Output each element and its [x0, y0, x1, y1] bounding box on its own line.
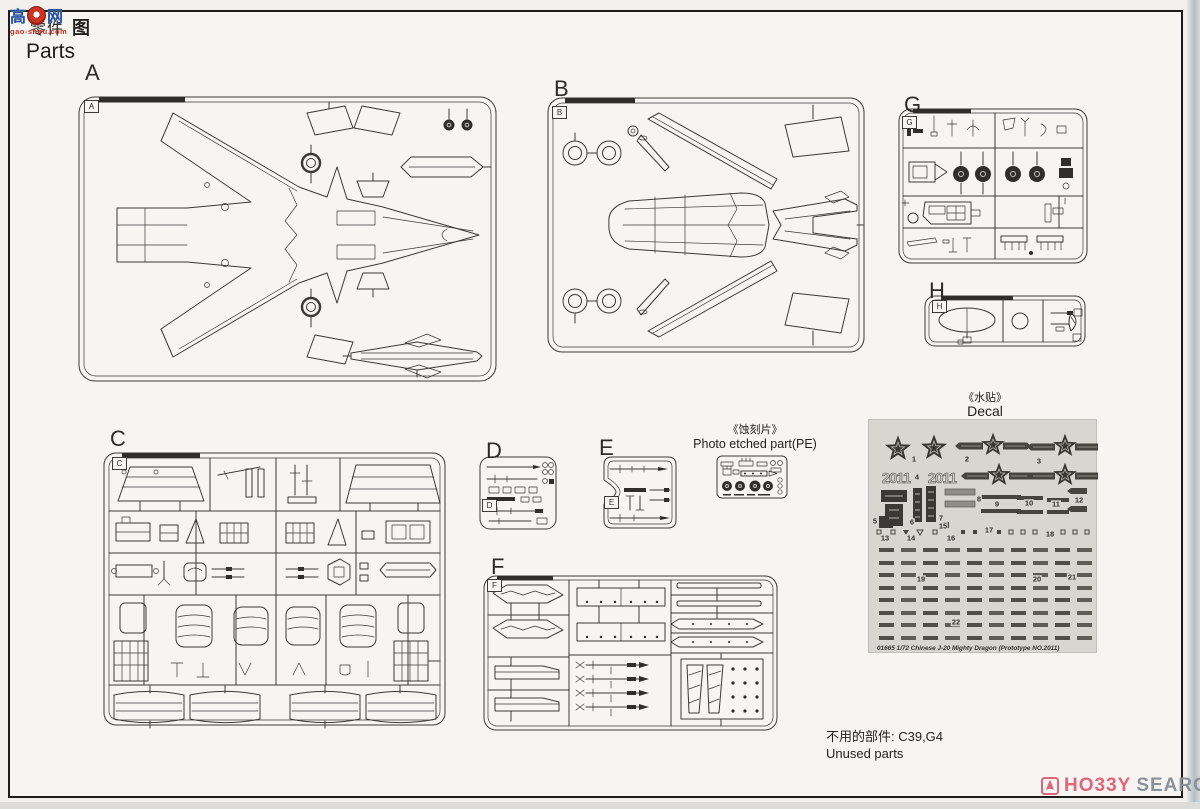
missile-row [576, 703, 649, 716]
missile-row [576, 675, 649, 688]
sprue-f-drawing [481, 571, 783, 735]
decal-dash [967, 623, 982, 627]
decal-dash [1011, 636, 1026, 640]
watermark-char-right: 网 [47, 3, 63, 27]
sprue-e-drawing [594, 452, 684, 532]
decal-dash [901, 598, 916, 602]
pe-fret-drawing [715, 454, 789, 500]
decal-dash [989, 611, 1004, 615]
watermark-emblem-icon [27, 6, 46, 25]
decal-dash [1055, 598, 1070, 602]
pe-heading-zh: 《蚀刻片》 [688, 424, 822, 437]
decal-dash [1011, 586, 1026, 590]
decal-dash [945, 636, 960, 640]
decal-number-18: 18 [1045, 530, 1055, 538]
sprue-d-drawing [477, 453, 559, 533]
pe-section-heading: 《蚀刻片》 Photo etched part(PE) [688, 424, 822, 451]
decal-dash [967, 548, 982, 552]
decal-dash [1055, 586, 1070, 590]
decal-sheet-artwork: 2011 2011 [869, 420, 1098, 654]
decal-number-10: 10 [1024, 499, 1034, 507]
decal-heading-en: Decal [930, 404, 1040, 419]
pe-heading-en: Photo etched part(PE) [688, 437, 822, 451]
decal-dash [901, 561, 916, 565]
decal-dash [989, 573, 1004, 577]
decal-dash [1011, 573, 1026, 577]
watermark-tu-char: 图 [72, 14, 90, 40]
decal-number-4: 4 [914, 473, 920, 481]
unused-parts-en: Unused parts [826, 745, 943, 762]
decal-dash [945, 548, 960, 552]
sprue-corner-tag-A: A [84, 100, 99, 113]
decal-dash [967, 611, 982, 615]
decal-footer-text: 01665 1/72 Chinese J-20 Mighty Dragon (P… [877, 645, 1059, 652]
decal-dash [1077, 548, 1092, 552]
sprue-a-drawing [75, 85, 500, 385]
decal-number-2: 2 [964, 455, 970, 463]
decal-dash [879, 611, 894, 615]
decal-dash [967, 561, 982, 565]
scanned-parts-page: { "page": { "title": "Parts", "watermark… [0, 0, 1200, 809]
decal-dash [989, 586, 1004, 590]
decal-dash [945, 586, 960, 590]
decal-dash [1077, 623, 1092, 627]
decal-dash [901, 573, 916, 577]
decal-dash [1033, 623, 1048, 627]
decal-number-21: 21 [1067, 573, 1077, 581]
decal-section-heading: 《水贴》 Decal [930, 392, 1040, 419]
sprue-c-drawing [100, 445, 452, 731]
scan-bottom-shadow [0, 802, 1200, 809]
decal-dash [923, 586, 938, 590]
decal-dash [923, 548, 938, 552]
decal-dash [1077, 561, 1092, 565]
unused-parts-zh: 不用的部件: C39,G4 [826, 728, 943, 745]
sprue-label-A: A [85, 60, 100, 86]
sprue-label-C: C [110, 426, 126, 452]
decal-dash [923, 636, 938, 640]
decal-dash [879, 548, 894, 552]
watermark-site-text: gao-shou.com [10, 27, 67, 36]
decal-sheet: 2011 2011 [868, 419, 1097, 653]
decal-dash [1033, 611, 1048, 615]
decal-dash [1055, 611, 1070, 615]
decal-dash [1077, 636, 1092, 640]
decal-dash [989, 598, 1004, 602]
decal-number-14: 14 [906, 534, 916, 542]
decal-number-12: 12 [1074, 496, 1084, 504]
decal-dash [989, 636, 1004, 640]
sprue-corner-tag-B: B [552, 106, 567, 119]
decal-serial-2: 2011 [928, 470, 957, 487]
watermark-logo-row: 高 网 [10, 3, 63, 27]
decal-dash [989, 623, 1004, 627]
sprue-label-G: G [904, 92, 921, 118]
decal-dash [1011, 561, 1026, 565]
scan-edge-shadow [1187, 0, 1200, 809]
sprue-h-drawing [923, 293, 1089, 349]
decal-dash [945, 561, 960, 565]
decal-dash [1055, 623, 1070, 627]
sprue-g-drawing [895, 106, 1091, 266]
missile-row [576, 661, 649, 674]
decal-dash [901, 548, 916, 552]
decal-dash [879, 573, 894, 577]
decal-serial-1: 2011 [882, 470, 911, 487]
decal-dash [1033, 548, 1048, 552]
decal-dash [923, 623, 938, 627]
decal-number-3: 3 [1036, 457, 1042, 465]
decal-dash [1077, 573, 1092, 577]
decal-dash [879, 598, 894, 602]
decal-dash [989, 548, 1004, 552]
decal-dash [901, 623, 916, 627]
unused-parts-note: 不用的部件: C39,G4 Unused parts [826, 728, 943, 762]
decal-dash [901, 586, 916, 590]
sprue-corner-tag-G: G [902, 116, 917, 129]
decal-dash [1011, 598, 1026, 602]
decal-dash [1055, 561, 1070, 565]
decal-dash [879, 586, 894, 590]
decal-dash [1033, 561, 1048, 565]
decal-dash [923, 561, 938, 565]
decal-dash [945, 611, 960, 615]
decal-dash [1033, 586, 1048, 590]
decal-dash [1077, 611, 1092, 615]
sprue-corner-tag-E: E [604, 496, 619, 509]
decal-dash [967, 636, 982, 640]
decal-dash [945, 573, 960, 577]
decal-number-22: 22 [951, 618, 961, 626]
decal-number-6: 6 [909, 518, 915, 526]
decal-number-9: 9 [994, 500, 1000, 508]
hobby-search-flame-icon [1041, 777, 1059, 795]
decal-number-1: 1 [911, 455, 917, 463]
sprue-corner-tag-H: H [932, 300, 947, 313]
decal-number-8: 8 [976, 495, 982, 503]
sprue-label-D: D [486, 438, 502, 464]
decal-dash [1033, 598, 1048, 602]
decal-dash [945, 598, 960, 602]
brand-text-hobby: HO33Y [1064, 775, 1131, 797]
decal-dash [1055, 636, 1070, 640]
watermark-logo: 零件 图 高 网 gao-shou.com [8, 2, 118, 44]
missile-row [576, 689, 649, 702]
decal-number-17: 17 [984, 526, 994, 534]
decal-dash [923, 611, 938, 615]
decal-dash [1011, 548, 1026, 552]
decal-dash [1033, 636, 1048, 640]
decal-number-20: 20 [1032, 575, 1042, 583]
decal-dash [901, 611, 916, 615]
watermark-char-left: 高 [10, 3, 26, 27]
sprue-b-drawing [545, 93, 867, 357]
sprue-corner-tag-C: C [112, 457, 127, 470]
sprue-label-F: F [491, 554, 504, 580]
decal-number-11: 11 [1051, 500, 1061, 508]
decal-dash [1011, 623, 1026, 627]
sprue-label-E: E [599, 435, 614, 461]
decal-dash [879, 561, 894, 565]
decal-number-19: 19 [916, 575, 926, 583]
decal-dash [901, 636, 916, 640]
decal-dash [879, 623, 894, 627]
decal-number-16: 16 [946, 534, 956, 542]
decal-number-5: 5 [872, 517, 878, 525]
decal-dash [923, 598, 938, 602]
sprue-corner-tag-F: F [487, 579, 502, 592]
decal-number-13: 13 [880, 534, 890, 542]
decal-dash [879, 636, 894, 640]
decal-dash [967, 573, 982, 577]
hobby-search-watermark: HO33Y SEARCH [1041, 775, 1200, 797]
decal-dash [967, 598, 982, 602]
decal-dash [1077, 598, 1092, 602]
decal-dash [1055, 548, 1070, 552]
decal-dash [1077, 586, 1092, 590]
sprue-corner-tag-D: D [482, 499, 497, 512]
decal-number-15: 15 [938, 522, 948, 530]
sprue-label-B: B [554, 76, 569, 102]
decal-dash [989, 561, 1004, 565]
brand-text-search: SEARCH [1136, 775, 1200, 797]
decal-dash [1011, 611, 1026, 615]
decal-dash [967, 586, 982, 590]
